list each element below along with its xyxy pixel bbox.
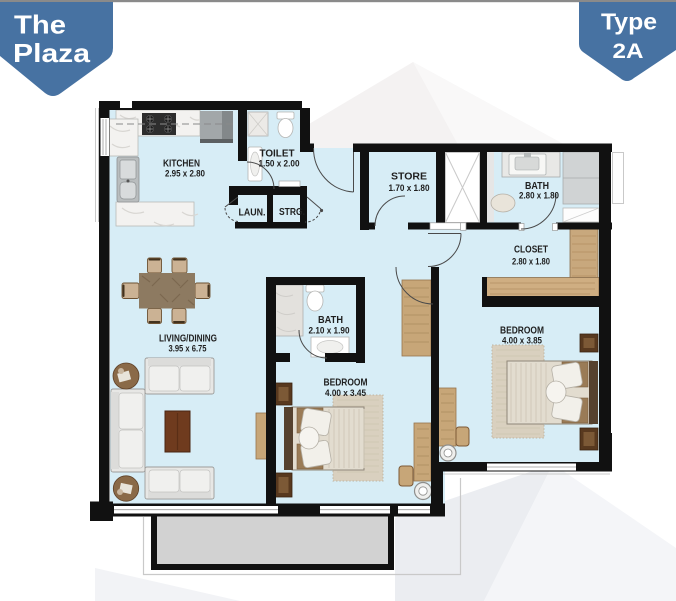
svg-text:3.95 x 6.75: 3.95 x 6.75 <box>169 344 207 354</box>
svg-text:STORE: STORE <box>391 172 427 183</box>
svg-text:1.50 x 2.00: 1.50 x 2.00 <box>259 159 300 169</box>
svg-text:1.70 x 1.80: 1.70 x 1.80 <box>389 183 430 193</box>
svg-text:Type: Type <box>601 9 657 35</box>
svg-text:2.95 x 2.80: 2.95 x 2.80 <box>165 169 205 179</box>
svg-text:LAUN.: LAUN. <box>239 208 266 219</box>
svg-text:The: The <box>14 10 66 40</box>
svg-text:BATH: BATH <box>318 315 343 326</box>
svg-text:4.00 x 3.45: 4.00 x 3.45 <box>325 388 366 398</box>
svg-text:2.80 x 1.80: 2.80 x 1.80 <box>519 191 559 201</box>
svg-text:CLOSET: CLOSET <box>514 245 548 256</box>
svg-text:2.80 x 1.80: 2.80 x 1.80 <box>512 257 550 267</box>
svg-text:2A: 2A <box>613 40 644 63</box>
svg-text:Plaza: Plaza <box>13 38 91 68</box>
svg-text:2.10 x 1.90: 2.10 x 1.90 <box>309 326 350 336</box>
svg-text:BEDROOM: BEDROOM <box>324 378 368 389</box>
svg-text:STRG.: STRG. <box>279 207 305 218</box>
svg-text:4.00 x 3.85: 4.00 x 3.85 <box>502 336 542 346</box>
